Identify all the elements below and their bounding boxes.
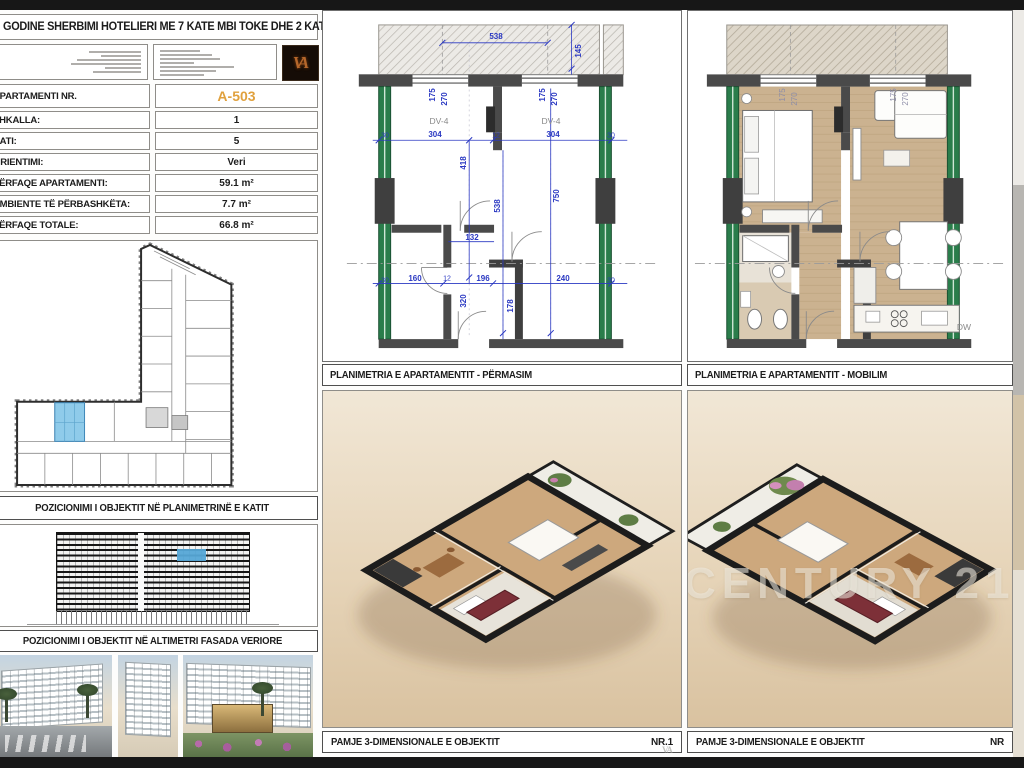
dimension-label: 175 (890, 88, 898, 101)
dimension-label: 304 (546, 131, 559, 139)
sheet-cut-edge (1013, 10, 1024, 757)
view3d-left-panel (322, 390, 682, 728)
highlighted-unit (55, 403, 85, 442)
title-block-column: GODINE SHERBIMI HOTELIERI ME 7 KATE MBI … (0, 0, 318, 768)
dimension-label: 12 (443, 276, 451, 283)
dimension-label: 538 (489, 33, 502, 41)
table-row-label: APARTAMENTI NR. (0, 84, 150, 108)
dimension-label: 30 (381, 278, 389, 285)
furnished-plan-panel: 175270175270DW (687, 10, 1013, 362)
table-row-value: 5 (155, 132, 318, 150)
render-street-view (0, 655, 112, 757)
isometric-view-1 (323, 391, 681, 727)
table-row-label: KATI: (0, 132, 150, 150)
key-plan-caption: POZICIONIMI I OBJEKTIT NË PLANIMETRINË E… (0, 496, 318, 520)
company-logo: VA (282, 45, 319, 81)
furnished-plan-caption: PLANIMETRIA E APARTAMENTIT - MOBILIM (687, 364, 1013, 386)
dimension-label: 270 (791, 92, 799, 105)
drawing-sheet: GODINE SHERBIMI HOTELIERI ME 7 KATE MBI … (0, 0, 1024, 768)
dimension-label: 270 (441, 92, 449, 105)
table-row-value: 7.7 m² (155, 195, 318, 213)
apartment-details-table: APARTAMENTI NR.A-503SHKALLA:1KATI:5ORIEN… (0, 84, 318, 237)
highlighted-unit-elevation (177, 549, 206, 561)
render-corner-view (118, 655, 178, 757)
view3d-left-caption: PAMJE 3-DIMENSIONALE E OBJEKTIT NR.1 (322, 731, 682, 753)
dimension-label: 178 (507, 299, 515, 312)
table-row-value: 1 (155, 111, 318, 129)
plan-tag-label: DV-4 (542, 117, 561, 126)
render-garden-view (183, 655, 313, 757)
exterior-renders (0, 655, 318, 757)
dimensioned-plan-caption: PLANIMETRIA E APARTAMENTIT - PËRMASIM (322, 364, 682, 386)
dimension-label: 30 (607, 133, 615, 140)
key-plan-drawing (0, 241, 317, 491)
faint-logo-mark: VA (662, 745, 672, 755)
view3d-right-number: NR (990, 737, 1004, 748)
dimension-label: 12 (492, 133, 500, 140)
view3d-right-panel: CENTURY 21 (687, 390, 1013, 728)
dimension-label: 30 (607, 278, 615, 285)
dimension-label: 145 (575, 44, 583, 57)
dimension-label: 270 (902, 92, 910, 105)
table-row-value: 66.8 m² (155, 216, 318, 234)
table-row: AMBIENTE TË PËRBASHKËTA:7.7 m² (0, 195, 318, 213)
elevation-caption: POZICIONIMI I OBJEKTIT NË ALTIMETRI FASA… (0, 630, 318, 652)
dimension-labels-layer: 538145175270175270DV-4DV-430304123043041… (323, 11, 681, 361)
facade-drawing (56, 532, 250, 612)
key-plan-panel (0, 240, 318, 492)
dimension-label: 750 (553, 189, 561, 202)
dimension-label: 30 (381, 133, 389, 140)
dimension-plan-column: 538145175270175270DV-4DV-430304123043041… (322, 0, 682, 768)
dimension-label: 320 (460, 294, 468, 307)
dimension-label: 418 (460, 156, 468, 169)
century21-watermark: CENTURY 21 (687, 559, 1013, 609)
view3d-right-caption: PAMJE 3-DIMENSIONALE E OBJEKTIT NR (687, 731, 1013, 753)
table-row-label: SHKALLA: (0, 111, 150, 129)
dimensioned-plan-panel: 538145175270175270DV-4DV-430304123043041… (322, 10, 682, 362)
dimension-label: 132 (465, 234, 478, 242)
table-row: PËRFAQE APARTAMENTI:59.1 m² (0, 174, 318, 192)
dimension-label: 270 (551, 92, 559, 105)
project-title: GODINE SHERBIMI HOTELIERI ME 7 KATE MBI … (0, 14, 318, 40)
investor-info-block (153, 44, 277, 80)
table-row-label: ORIENTIMI: (0, 153, 150, 171)
dimension-label: 304 (428, 131, 441, 139)
dimension-label: 160 (408, 275, 421, 283)
architect-info-block (0, 44, 148, 80)
ground-floor-columns (56, 611, 248, 625)
bottom-black-bar (0, 757, 1024, 768)
table-row: PËRFAQE TOTALE:66.8 m² (0, 216, 318, 234)
plan-tag-label: DV-4 (430, 117, 449, 126)
table-row: SHKALLA:1 (0, 111, 318, 129)
table-row-value: Veri (155, 153, 318, 171)
table-row: ORIENTIMI:Veri (0, 153, 318, 171)
table-row-label: PËRFAQE TOTALE: (0, 216, 150, 234)
table-row-label: AMBIENTE TË PËRBASHKËTA: (0, 195, 150, 213)
dimension-label: 175 (539, 88, 547, 101)
elevation-panel (0, 524, 318, 627)
table-row: KATI:5 (0, 132, 318, 150)
dimension-label: 175 (779, 88, 787, 101)
furnished-labels-layer: 175270175270DW (688, 11, 1012, 361)
table-row-label: PËRFAQE APARTAMENTI: (0, 174, 150, 192)
table-row-value: 59.1 m² (155, 174, 318, 192)
table-row-value: A-503 (155, 84, 318, 108)
dimension-label: 175 (429, 88, 437, 101)
dimension-label: 196 (476, 275, 489, 283)
table-row: APARTAMENTI NR.A-503 (0, 84, 318, 108)
logo-monogram: VA (293, 53, 308, 73)
furnished-plan-column: 175270175270DW PLANIMETRIA E APARTAMENTI… (687, 0, 1013, 768)
plan-tag-label: DW (957, 323, 971, 332)
dimension-label: 538 (494, 199, 502, 212)
dimension-label: 240 (556, 275, 569, 283)
